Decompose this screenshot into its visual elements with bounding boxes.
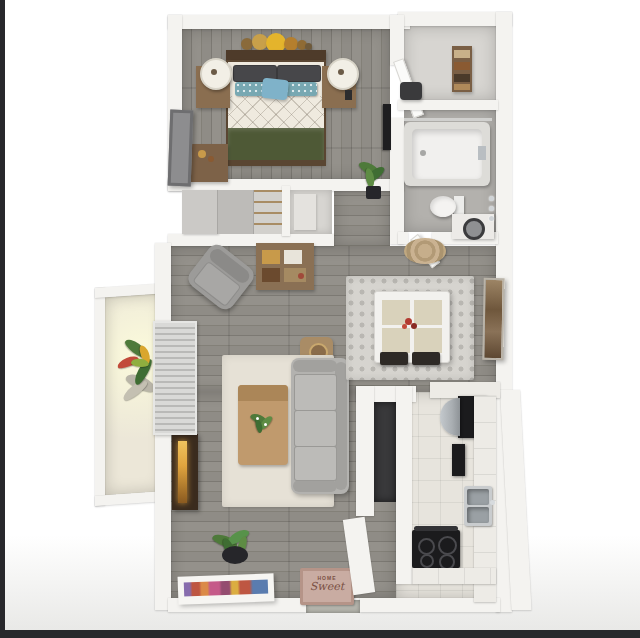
sofa-cushion-3 bbox=[294, 446, 337, 481]
bedroom-wall-right-lower bbox=[390, 118, 404, 244]
bed-blanket bbox=[228, 128, 324, 162]
washer-door bbox=[463, 218, 485, 240]
dining-chair-bottom-right bbox=[412, 352, 440, 365]
table-lamp-left-finial bbox=[211, 69, 217, 75]
accent-pillow-center bbox=[261, 78, 289, 101]
fireplace-console bbox=[172, 434, 198, 510]
wall-oven bbox=[452, 444, 465, 476]
closet-shelves-edge bbox=[254, 190, 282, 234]
bedroom-wall-top bbox=[168, 15, 410, 29]
right-wall-art bbox=[482, 278, 504, 360]
closet-wall-top bbox=[398, 12, 512, 26]
dresser-decor-1 bbox=[198, 150, 206, 158]
tub-faucet bbox=[478, 146, 486, 160]
bed-headboard bbox=[226, 50, 326, 62]
closet-bathroom-divider bbox=[398, 100, 498, 110]
console-table bbox=[256, 243, 314, 290]
fireplace-flame bbox=[178, 441, 187, 503]
accent-pillow-right bbox=[284, 82, 317, 96]
sofa-arm-bottom bbox=[293, 480, 337, 492]
photo-left-edge bbox=[0, 0, 5, 638]
closet-shelf-unit bbox=[452, 46, 472, 92]
hallway-floor bbox=[334, 186, 390, 246]
bed-quilt-pattern bbox=[228, 96, 324, 128]
hall-round-rug bbox=[404, 238, 446, 264]
washer bbox=[452, 214, 494, 239]
doormat: HOME Sweet bbox=[300, 568, 354, 605]
range-stove bbox=[412, 530, 460, 568]
laundry-nook-interior bbox=[374, 402, 396, 502]
wall-tv bbox=[383, 104, 391, 150]
doormat-text-sweet: Sweet bbox=[303, 581, 351, 592]
tub-drain bbox=[420, 150, 426, 156]
laundry-nook-left bbox=[356, 386, 374, 516]
living-wall-left-upper bbox=[155, 243, 171, 327]
bathtub bbox=[404, 122, 490, 186]
table-lamp-right-finial bbox=[338, 69, 344, 75]
balcony-wall-left bbox=[95, 287, 105, 506]
sofa-arm-top bbox=[293, 360, 337, 372]
dining-chair-bottom-left bbox=[380, 352, 408, 365]
coffee-table bbox=[238, 385, 288, 465]
stove-handle bbox=[414, 526, 458, 531]
laundry-nook-pillar bbox=[396, 386, 412, 584]
closet-chair bbox=[400, 82, 422, 100]
sofa-cushion-1 bbox=[294, 374, 337, 411]
double-sink bbox=[464, 486, 492, 526]
sofa bbox=[291, 358, 349, 494]
balcony-door-blinds bbox=[153, 321, 197, 435]
living-wall-left-lower bbox=[155, 428, 171, 610]
sofa-cushion-2 bbox=[294, 410, 337, 447]
artwork-paint bbox=[184, 580, 268, 597]
sink-faucet bbox=[490, 500, 495, 505]
floor-plan-image: HOME Sweet bbox=[0, 0, 640, 638]
linen-closet bbox=[290, 190, 332, 234]
closet-row-divider bbox=[282, 186, 290, 236]
kitchen-bottom-counter bbox=[412, 568, 496, 584]
bathroom-wall-bottom-left bbox=[398, 232, 408, 244]
bed-foot-rail bbox=[228, 160, 324, 165]
dresser-decor-2 bbox=[208, 156, 214, 162]
shower-rod bbox=[404, 118, 492, 121]
leaning-artwork bbox=[178, 573, 275, 604]
leaning-mirror bbox=[168, 110, 194, 187]
photo-bottom-edge bbox=[0, 630, 640, 638]
nightstand-clock bbox=[345, 90, 352, 100]
